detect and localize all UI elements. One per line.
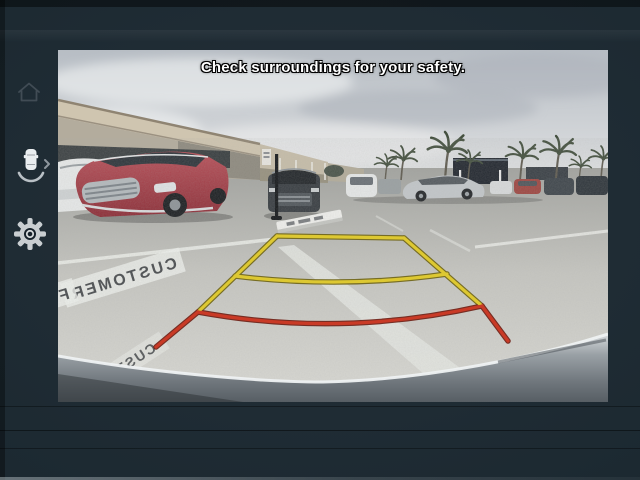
- warning-banner: Check surroundings for your safety.: [58, 59, 608, 76]
- gear-icon: [12, 216, 48, 252]
- home-icon: [16, 80, 42, 104]
- bezel-top-edge: [0, 0, 640, 7]
- settings-button[interactable]: [12, 216, 48, 252]
- chevron-right-icon: [45, 160, 49, 168]
- bezel-left-edge: [0, 0, 5, 480]
- parking-assist-button[interactable]: [13, 147, 53, 189]
- bezel-seam: [0, 406, 640, 407]
- camera-scene: CUSTOMER F CUSTOM: [58, 50, 608, 402]
- rear-camera-view: Check surroundings for your safety.: [58, 50, 608, 402]
- home-button[interactable]: [16, 80, 42, 104]
- guideline-yellow-top: [277, 236, 404, 238]
- car-sensor-icon: [13, 147, 53, 189]
- bezel-seam: [0, 448, 640, 449]
- bezel-seam: [0, 430, 640, 431]
- bezel-glare: [0, 30, 640, 42]
